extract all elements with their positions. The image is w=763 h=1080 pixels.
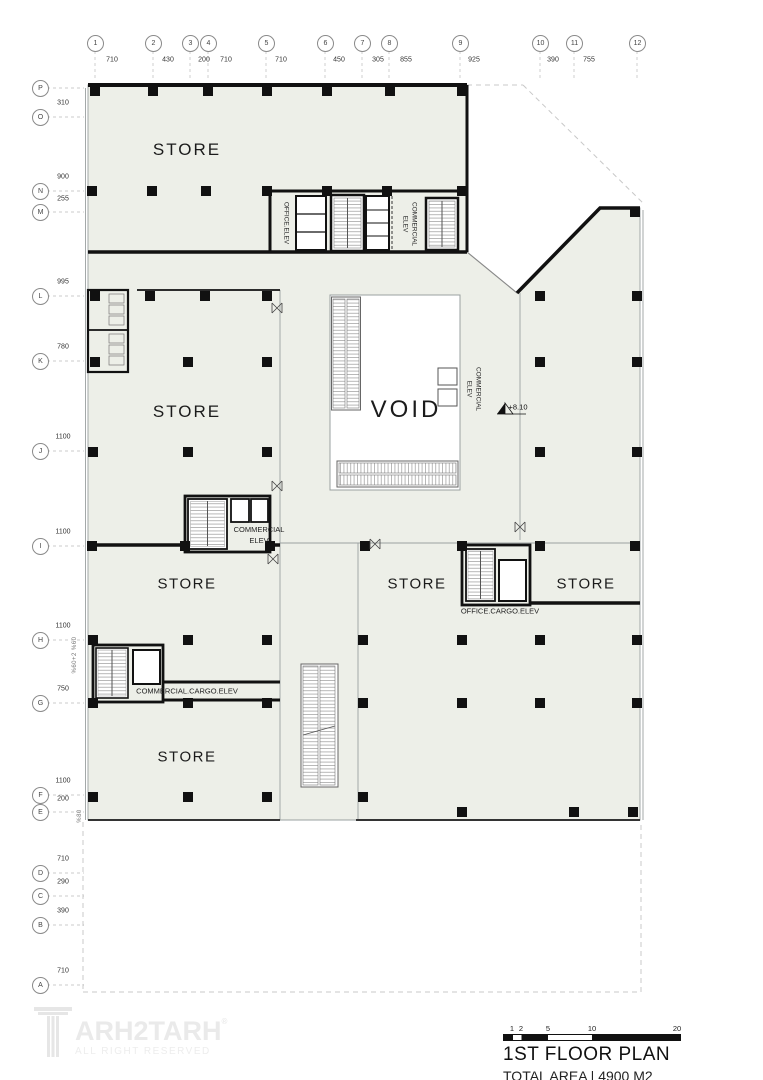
registered-mark: ®: [222, 1017, 228, 1026]
dim-left-10: 1100: [55, 778, 70, 785]
dim-top-7: 305: [372, 57, 384, 64]
top-elevator-core: [296, 195, 458, 251]
dim-left-4: 995: [57, 279, 69, 286]
grid-bubble-row-L: L: [32, 288, 49, 305]
grid-bubble-row-P: P: [32, 80, 49, 97]
room-label-store-lowerleft: STORE: [158, 576, 217, 593]
ramp-slope-label-upper: %60+2 %60: [72, 636, 78, 673]
label-elev-word: ELEV: [234, 536, 285, 547]
grid-bubble-col-11: 11: [566, 35, 583, 52]
grid-bubble-col-4: 4: [200, 35, 217, 52]
label-elev-word: ELEV: [400, 202, 409, 246]
room-label-store-midright: STORE: [388, 576, 447, 593]
room-label-void: VOID: [371, 396, 442, 424]
grid-bubble-col-7: 7: [354, 35, 371, 52]
grid-bubble-col-8: 8: [381, 35, 398, 52]
dim-top-10: 390: [547, 57, 559, 64]
escalator-long: [301, 664, 338, 787]
grid-bubble-row-C: C: [32, 888, 49, 905]
dim-left-9: 750: [57, 686, 69, 693]
dim-top-3: 200: [198, 57, 210, 64]
label-commercial-elev-top: COMMERCIAL ELEV: [400, 202, 419, 246]
dim-top-4: 710: [220, 57, 232, 64]
plan-subtitle: TOTAL AREA | 4900 M2: [503, 1068, 693, 1080]
dim-left-5: 780: [57, 344, 69, 351]
title-block: 1 2 5 10 20 1ST FLOOR PLAN TOTAL AREA | …: [503, 1024, 693, 1080]
dim-left-7: 1100: [55, 529, 70, 536]
grid-bubble-col-3: 3: [182, 35, 199, 52]
scale-tick-10: 10: [588, 1024, 596, 1033]
dim-left-11: 200: [57, 796, 69, 803]
grid-bubble-row-O: O: [32, 109, 49, 126]
dim-left-2: 900: [57, 174, 69, 181]
grid-bubble-col-10: 10: [532, 35, 549, 52]
dim-top-2: 430: [162, 57, 174, 64]
dim-top-9: 925: [468, 57, 480, 64]
grid-bubble-row-E: E: [32, 804, 49, 821]
grid-bubble-col-12: 12: [629, 35, 646, 52]
plan-title: 1ST FLOOR PLAN: [503, 1044, 693, 1066]
grid-bubble-row-N: N: [32, 183, 49, 200]
floor-plan-page: 1 2 3 4 5 6 7 8 9 10 11 12 710 430 200 7…: [0, 0, 763, 1080]
scale-tick-20: 20: [673, 1024, 681, 1033]
grid-bubble-col-9: 9: [452, 35, 469, 52]
grid-bubble-col-6: 6: [317, 35, 334, 52]
grid-bubble-row-D: D: [32, 865, 49, 882]
grid-bubble-col-1: 1: [87, 35, 104, 52]
escalator-horizontal-pair: [337, 461, 458, 487]
label-commercial-cargo-elev: COMMERCIAL.CARGO.ELEV: [136, 687, 238, 696]
label-elev-word: ELEV: [464, 367, 473, 411]
office-cargo-core: [462, 545, 530, 605]
ramp-slope-label-lower: %80: [77, 809, 83, 823]
grid-bubble-row-K: K: [32, 353, 49, 370]
dim-left-15: 710: [57, 968, 69, 975]
grid-bubble-row-H: H: [32, 632, 49, 649]
label-commercial-elev-void: COMMERCIAL ELEV: [464, 367, 483, 411]
level-marker-text: +8.10: [509, 403, 528, 412]
scale-tick-5: 5: [546, 1024, 550, 1033]
grid-bubble-row-I: I: [32, 538, 49, 555]
grid-bubble-col-2: 2: [145, 35, 162, 52]
dim-left-13: 290: [57, 879, 69, 886]
room-label-store-bottomleft: STORE: [158, 749, 217, 766]
grid-bubble-col-5: 5: [258, 35, 275, 52]
dim-left-1: 310: [57, 100, 69, 107]
escalator-vertical-pair: [332, 297, 361, 410]
logo-tagline: ALL RIGHT RESERVED: [75, 1046, 227, 1057]
dim-left-6: 1100: [55, 434, 70, 441]
dim-top-11: 755: [583, 57, 595, 64]
dim-left-3: 255: [57, 196, 69, 203]
room-label-store-midleft: STORE: [153, 402, 221, 422]
scale-tick-2: 2: [519, 1024, 523, 1033]
logo-text: ARH2TARH® ALL RIGHT RESERVED: [75, 1001, 227, 1057]
floor-plan-drawing: [0, 0, 763, 1080]
label-commercial-elev-mid: COMMERCIAL ELEV: [234, 525, 285, 547]
dim-top-5: 710: [275, 57, 287, 64]
room-label-store-topleft: STORE: [153, 140, 221, 160]
dim-top-8: 855: [400, 57, 412, 64]
logo-brand: ARH2TARH®: [75, 1018, 227, 1045]
label-commercial-word: COMMERCIAL: [234, 525, 285, 536]
grid-bubble-row-A: A: [32, 977, 49, 994]
label-commercial-word: COMMERCIAL: [409, 202, 418, 246]
grid-bubble-row-M: M: [32, 204, 49, 221]
label-office-elev: OFFICE.ELEV: [283, 202, 290, 244]
dim-left-8: 1100: [55, 623, 70, 630]
logo-brand-word: ARH2TARH: [75, 1016, 222, 1046]
room-label-store-right: STORE: [557, 576, 616, 593]
dim-top-1: 710: [106, 57, 118, 64]
dim-left-14: 390: [57, 908, 69, 915]
dim-top-6: 450: [333, 57, 345, 64]
logo-tarh2tarh: ARH2TARH® ALL RIGHT RESERVED: [33, 1001, 227, 1059]
grid-bubble-row-J: J: [32, 443, 49, 460]
label-commercial-word: COMMERCIAL: [473, 367, 482, 411]
scale-tick-1: 1: [510, 1024, 514, 1033]
void-atrium: [330, 295, 460, 490]
scale-bar: [503, 1034, 681, 1041]
column-icon: [33, 1001, 73, 1059]
grid-bubble-row-F: F: [32, 787, 49, 804]
grid-bubble-row-G: G: [32, 695, 49, 712]
grid-bubble-row-B: B: [32, 917, 49, 934]
dim-left-12: 710: [57, 856, 69, 863]
label-office-cargo-elev: OFFICE.CARGO.ELEV: [461, 607, 539, 616]
